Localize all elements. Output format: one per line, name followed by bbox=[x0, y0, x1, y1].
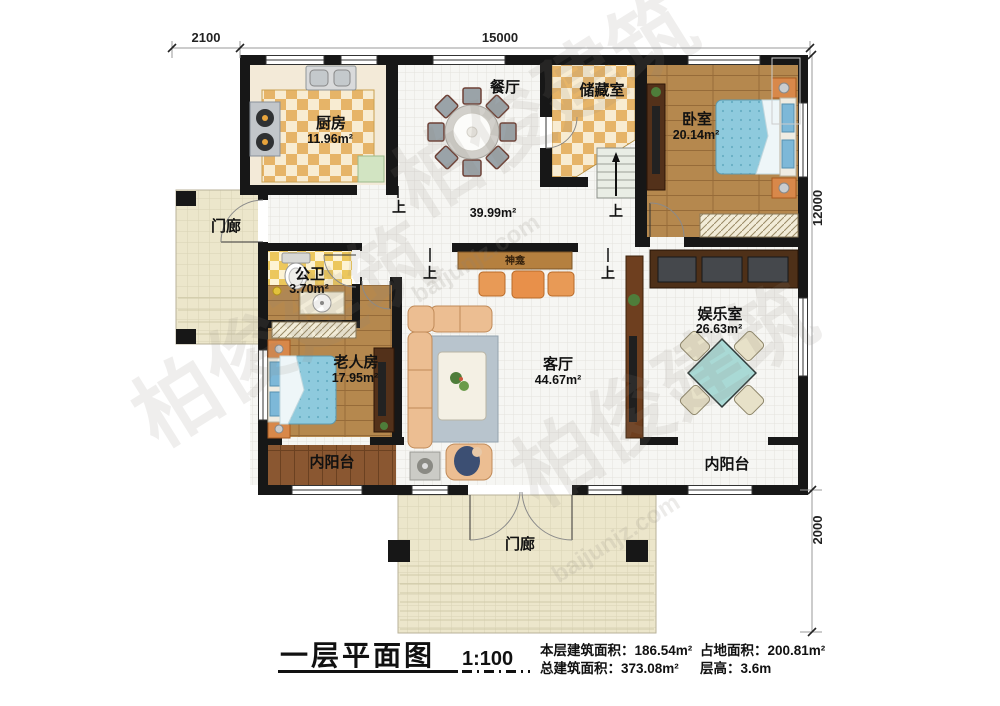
shrine-label: 神龛 bbox=[505, 254, 526, 267]
room-label-porch-left: 门廊 bbox=[211, 217, 241, 235]
nightstand-lamp bbox=[779, 83, 789, 93]
window bbox=[341, 56, 377, 65]
stat-value: 186.54m² bbox=[635, 643, 693, 658]
up-marker: 上 bbox=[609, 203, 623, 219]
room-label-elder: 老人房 bbox=[332, 353, 378, 371]
dim-top-offset: 2100 bbox=[192, 30, 221, 45]
room-label-kitchen: 厨房 bbox=[316, 114, 346, 132]
burner-flame bbox=[262, 115, 268, 121]
porch-bottom-floor bbox=[398, 495, 656, 633]
shrine-chair bbox=[548, 272, 574, 296]
stat-label: 本层建筑面积： bbox=[540, 642, 635, 658]
pillow bbox=[782, 104, 794, 132]
sofa-top bbox=[430, 306, 492, 332]
room-label-living: 客厅 bbox=[542, 355, 573, 373]
stat-label: 层高： bbox=[700, 660, 741, 676]
room-label-storage: 储藏室 bbox=[579, 81, 624, 99]
hall-area-label: 39.99m² bbox=[470, 206, 517, 220]
room-label-dining: 餐厅 bbox=[490, 78, 520, 96]
stat-land-area: 占地面积：200.81m² bbox=[700, 642, 826, 658]
wall-segment bbox=[240, 55, 250, 195]
plant-flower bbox=[459, 377, 463, 381]
sink-basin bbox=[310, 70, 328, 86]
room-label-balcony-left: 内阳台 bbox=[309, 453, 354, 471]
plant bbox=[459, 381, 469, 391]
staircase bbox=[597, 148, 640, 198]
monitor bbox=[378, 362, 386, 416]
pillow bbox=[782, 140, 794, 168]
up-marker: 上 bbox=[392, 199, 406, 215]
media-screen bbox=[658, 257, 696, 282]
lamp-top bbox=[422, 463, 428, 469]
room-label-bathroom: 公卫 bbox=[295, 266, 325, 283]
window bbox=[433, 56, 505, 65]
stat-total-area: 总建筑面积：373.08m² bbox=[540, 660, 679, 676]
stat-value: 373.08m² bbox=[621, 661, 679, 676]
wall-segment bbox=[768, 437, 808, 445]
room-area-kitchen: 11.96m² bbox=[307, 132, 353, 146]
room-label-porch-bottom: 门廊 bbox=[505, 535, 535, 553]
wall-segment bbox=[684, 237, 808, 247]
porch-column bbox=[176, 191, 196, 206]
nightstand-lamp bbox=[779, 183, 789, 193]
plant bbox=[380, 422, 388, 430]
stat-floor-height: 层高：3.6m bbox=[700, 660, 771, 676]
floor-plan-page: 神龛 bbox=[0, 0, 1000, 706]
room-label-entertainment: 娱乐室 bbox=[697, 305, 742, 323]
nightstand-lamp bbox=[275, 425, 283, 433]
shrine-chair bbox=[512, 271, 544, 298]
stat-label: 总建筑面积： bbox=[540, 660, 621, 676]
media-screen bbox=[702, 257, 742, 282]
plan-title: 一层平面图 bbox=[280, 640, 435, 671]
room-area-entertainment: 26.63m² bbox=[696, 322, 743, 336]
window bbox=[292, 486, 362, 495]
dim-right-height: 12000 bbox=[810, 190, 825, 226]
wall-segment bbox=[240, 185, 357, 195]
plan-scale: 1:100 bbox=[462, 648, 513, 670]
up-marker: 上 bbox=[601, 265, 615, 281]
stat-value: 3.6m bbox=[741, 661, 772, 676]
monitor bbox=[652, 106, 660, 174]
up-marker: 上 bbox=[423, 265, 437, 281]
room-area-living: 44.67m² bbox=[535, 373, 582, 387]
stat-value: 200.81m² bbox=[768, 643, 826, 658]
wall-segment bbox=[635, 237, 650, 247]
stat-floor-area: 本层建筑面积：186.54m² bbox=[540, 642, 693, 658]
dim-top-width: 15000 bbox=[482, 30, 518, 45]
wardrobe bbox=[700, 214, 798, 237]
stat-label: 占地面积： bbox=[700, 642, 768, 658]
wall-segment bbox=[370, 437, 404, 445]
room-area-elder: 17.95m² bbox=[332, 371, 379, 385]
title-block: 一层平面图 1:100 本层建筑面积：186.54m² 占地面积：200.81m… bbox=[278, 640, 826, 676]
shrine-chair bbox=[479, 272, 505, 296]
room-area-bedroom: 20.14m² bbox=[673, 128, 720, 142]
sink-basin bbox=[334, 70, 350, 86]
title-underline bbox=[278, 670, 458, 673]
room-label-bedroom: 卧室 bbox=[682, 110, 712, 128]
plant bbox=[628, 294, 640, 306]
window bbox=[688, 486, 752, 495]
floor-plan: 神龛 bbox=[0, 0, 1000, 706]
room-area-bathroom: 3.70m² bbox=[289, 282, 329, 296]
window bbox=[412, 486, 448, 495]
toilet-tank bbox=[282, 253, 310, 263]
porch-column bbox=[388, 540, 410, 562]
burner-flame bbox=[262, 139, 268, 145]
person-head bbox=[472, 447, 482, 457]
room-label-balcony-right: 内阳台 bbox=[704, 455, 749, 473]
dim-porch-depth: 2000 bbox=[810, 516, 825, 545]
sofa-left bbox=[408, 332, 432, 448]
window bbox=[266, 56, 324, 65]
wall-segment bbox=[540, 177, 588, 187]
